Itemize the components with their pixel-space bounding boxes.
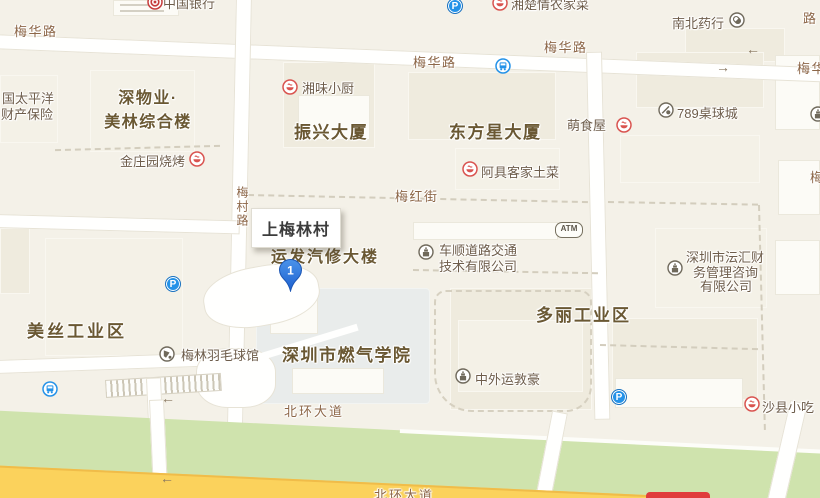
poi-hakka[interactable]: 阿具客家土菜 xyxy=(481,162,559,181)
map-canvas[interactable]: 梅华路 梅华路 梅华路 梅华路 路 梅村路 梅红街 北环大道 北环大道 梅 ← … xyxy=(0,0,820,498)
road-label-meihua-edge: 梅华路 xyxy=(797,58,820,77)
road-label-meihong: 梅红街 xyxy=(395,186,439,205)
restaurant-icon[interactable] xyxy=(282,79,298,95)
restaurant-icon[interactable] xyxy=(616,117,632,133)
direction-arrow-right: → xyxy=(716,60,730,74)
road-label-beihuan-1: 北环大道 xyxy=(284,401,344,420)
legend-box-line xyxy=(120,4,150,6)
poi-shaxian[interactable]: 沙县小吃 xyxy=(762,397,814,416)
dashed-street-meihong-east xyxy=(608,201,758,206)
area-shenwuye-line1: 深物业· xyxy=(96,84,200,108)
poi-badminton[interactable]: 梅林羽毛球馆 xyxy=(181,345,259,364)
poi-cheshun-line2[interactable]: 技术有限公司 xyxy=(439,256,517,275)
restaurant-icon[interactable] xyxy=(492,0,508,11)
bank-icon[interactable] xyxy=(147,0,163,10)
legend-box-line xyxy=(120,10,164,12)
company-icon[interactable] xyxy=(667,260,683,276)
poi-yunhui-line3[interactable]: 有限公司 xyxy=(700,276,752,295)
road-label-meicun-vertical: 梅村路 xyxy=(234,186,251,228)
poi-billiards[interactable]: 789桌球城 xyxy=(677,103,738,122)
direction-arrow-left: ← xyxy=(161,391,175,405)
restaurant-icon[interactable] xyxy=(189,151,205,167)
area-shenwuye: 深物业· 美林综合楼 xyxy=(96,84,200,132)
marker-pin-icon: 1 xyxy=(279,259,302,292)
map-marker-1[interactable]: 1 xyxy=(279,259,302,297)
area-zhenxing: 振兴大厦 xyxy=(294,118,368,143)
area-meisi: 美丝工业区 xyxy=(27,317,127,342)
building-block xyxy=(620,135,760,183)
poi-xiangchu[interactable]: 湘楚情农家菜 xyxy=(511,0,589,13)
poi-bbq[interactable]: 金庄园烧烤 xyxy=(120,151,185,170)
place-label-text: 上梅林村 xyxy=(262,216,330,240)
poi-mengshiwu[interactable]: 萌食屋 xyxy=(567,115,606,134)
badminton-icon[interactable] xyxy=(159,346,175,362)
atm-icon[interactable]: ATM xyxy=(555,222,583,238)
road-label-mei-partial: 梅 xyxy=(810,167,820,186)
company-icon[interactable] xyxy=(455,368,471,384)
restaurant-icon[interactable] xyxy=(462,161,478,177)
building-block xyxy=(775,240,820,295)
bus-stop-icon[interactable] xyxy=(42,381,58,397)
marker-number: 1 xyxy=(287,264,294,278)
road-label-meihua-1: 梅华路 xyxy=(14,21,58,40)
building-block xyxy=(292,368,384,394)
area-ranqi: 深圳市燃气学院 xyxy=(282,341,412,366)
road-label-meihua-2: 梅华路 xyxy=(413,52,457,71)
company-icon[interactable] xyxy=(418,244,434,260)
red-banner-clipped xyxy=(646,492,710,498)
building-block xyxy=(615,378,743,408)
poi-xiangwei[interactable]: 湘味小厨 xyxy=(302,78,354,97)
area-insurance-line2: 财产保险 xyxy=(1,104,53,123)
area-duoli: 多丽工业区 xyxy=(536,301,631,326)
parking-icon[interactable]: P xyxy=(165,276,181,292)
road-label-lu-partial: 路 xyxy=(803,8,818,27)
area-dongfangxing: 东方星大厦 xyxy=(449,118,542,143)
direction-arrow-left: ← xyxy=(746,42,760,56)
poi-bank[interactable]: 中国银行 xyxy=(163,0,215,12)
road-west-horizontal xyxy=(0,214,240,234)
road-label-beihuan-2: 北环大道 xyxy=(374,485,434,498)
direction-arrow-left: ← xyxy=(160,471,174,485)
pharmacy-icon[interactable] xyxy=(729,12,745,28)
bus-stop-icon[interactable] xyxy=(495,58,511,74)
building-block xyxy=(413,222,558,240)
parking-icon[interactable]: P xyxy=(447,0,463,14)
company-icon-clipped[interactable] xyxy=(810,106,820,122)
restaurant-icon[interactable] xyxy=(744,396,760,412)
building-block xyxy=(0,228,30,294)
billiards-icon[interactable] xyxy=(658,102,674,118)
poi-pharmacy[interactable]: 南北药行 xyxy=(672,13,724,32)
parking-icon[interactable]: P xyxy=(611,389,627,405)
poi-dhl[interactable]: 中外运敦豪 xyxy=(475,369,540,388)
area-shenwuye-line2: 美林综合楼 xyxy=(96,108,200,132)
road-label-meihua-3: 梅华路 xyxy=(544,37,588,56)
place-label-shangmeilin[interactable]: 上梅林村 xyxy=(251,208,341,248)
